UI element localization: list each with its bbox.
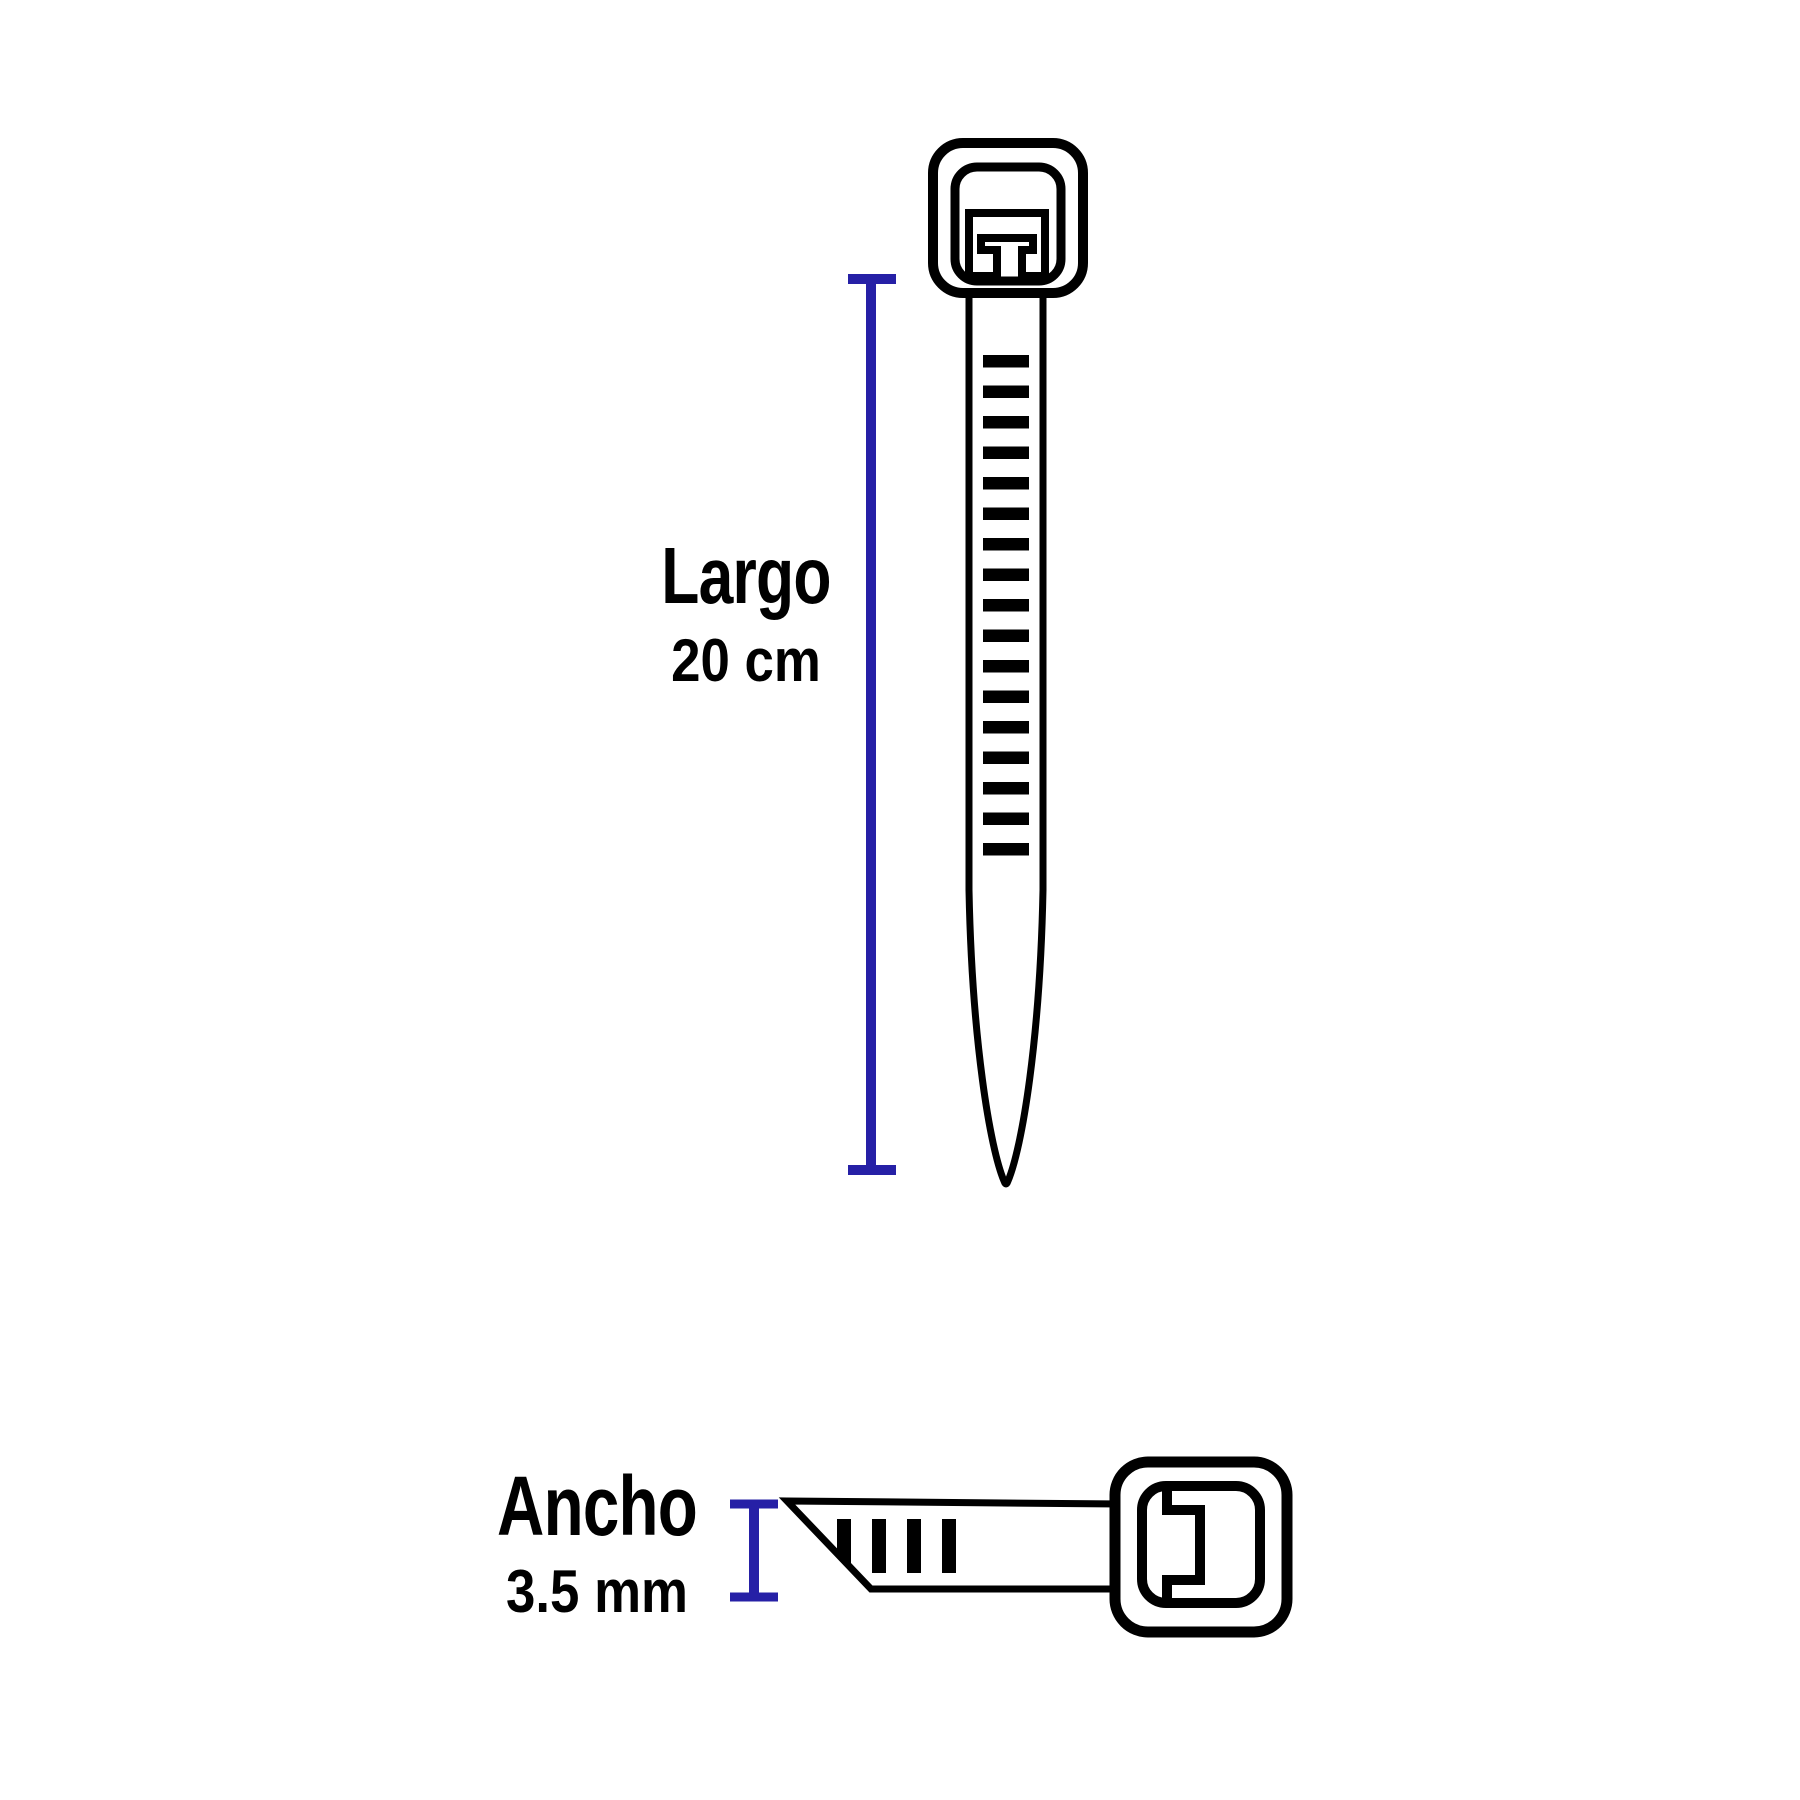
tooth-mark	[983, 782, 1029, 795]
tooth-mark	[983, 691, 1029, 704]
tooth-mark	[983, 447, 1029, 460]
tooth-mark	[983, 508, 1029, 521]
vertical-tie-head	[933, 143, 1083, 293]
tooth-mark	[983, 355, 1029, 368]
horizontal-tie-head	[1115, 1462, 1287, 1632]
tooth-mark	[983, 721, 1029, 734]
length-label: Largo	[661, 536, 830, 616]
horizontal-cable-tie	[787, 1462, 1287, 1632]
tooth-mark	[983, 752, 1029, 765]
tooth-mark	[983, 569, 1029, 582]
width-value: 3.5 mm	[506, 1562, 688, 1622]
diagram-artwork	[0, 0, 1800, 1800]
cable-tie-dimensions-diagram: Largo 20 cm Ancho 3.5 mm	[0, 0, 1800, 1800]
width-dimension-line	[730, 1504, 778, 1597]
tooth-mark	[942, 1519, 956, 1573]
tooth-mark	[983, 538, 1029, 551]
vertical-cable-tie	[933, 143, 1083, 1184]
tooth-mark	[983, 416, 1029, 429]
vertical-tie-teeth	[983, 355, 1029, 856]
length-value: 20 cm	[671, 631, 821, 691]
tooth-mark	[983, 843, 1029, 856]
tooth-mark	[983, 386, 1029, 399]
tooth-mark	[907, 1519, 921, 1573]
tooth-mark	[872, 1519, 886, 1573]
tooth-mark	[983, 599, 1029, 612]
tooth-mark	[983, 660, 1029, 673]
tooth-mark	[983, 813, 1029, 826]
tooth-mark	[983, 630, 1029, 643]
width-label: Ancho	[497, 1464, 697, 1548]
length-dimension-line	[848, 279, 896, 1170]
tooth-mark	[983, 477, 1029, 490]
